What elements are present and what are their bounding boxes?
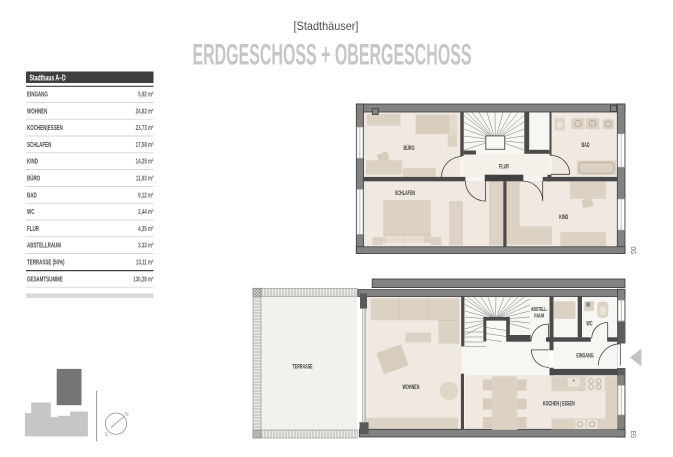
svg-text:BAD: BAD <box>581 142 589 149</box>
svg-text:17,58 m²: 17,58 m² <box>136 141 154 149</box>
svg-text:KOCHEN|ESSEN: KOCHEN|ESSEN <box>27 125 63 132</box>
svg-text:ABSTELLRAUM: ABSTELLRAUM <box>27 243 61 250</box>
svg-text:WC: WC <box>586 321 592 328</box>
svg-text:WC: WC <box>27 209 35 216</box>
svg-text:[Stadthäuser]: [Stadthäuser] <box>294 21 359 33</box>
svg-text:WOHNEN: WOHNEN <box>403 384 420 391</box>
svg-text:RAUM: RAUM <box>534 313 544 319</box>
svg-text:5,92 m²: 5,92 m² <box>138 91 153 99</box>
svg-text:S: S <box>105 432 109 438</box>
svg-text:FLUR: FLUR <box>499 163 509 170</box>
svg-text:TERRASSE (50%): TERRASSE (50%) <box>27 260 65 267</box>
svg-text:KOCHEN | ESSEN: KOCHEN | ESSEN <box>543 401 575 408</box>
svg-text:Stadthaus A–D: Stadthaus A–D <box>30 75 66 83</box>
svg-text:EINGANG: EINGANG <box>27 92 48 99</box>
svg-text:13,11 m²: 13,11 m² <box>136 259 154 267</box>
svg-text:4,35 m²: 4,35 m² <box>138 225 153 233</box>
svg-text:WOHNEN: WOHNEN <box>27 109 47 116</box>
svg-text:SCHLAFEN: SCHLAFEN <box>27 142 51 149</box>
svg-text:KIND: KIND <box>559 214 568 221</box>
svg-text:24,82 m²: 24,82 m² <box>136 107 154 115</box>
svg-text:3,33 m²: 3,33 m² <box>138 242 153 250</box>
svg-text:SCHLAFEN: SCHLAFEN <box>395 190 416 197</box>
svg-text:OG: OG <box>628 247 635 255</box>
svg-text:BAD: BAD <box>27 193 37 200</box>
svg-text:ERDGESCHOSS + OBERGESCHOSS: ERDGESCHOSS + OBERGESCHOSS <box>192 38 471 72</box>
svg-text:BÜRO: BÜRO <box>404 144 415 152</box>
svg-text:11,93 m²: 11,93 m² <box>136 175 154 183</box>
svg-text:KIND: KIND <box>27 159 38 166</box>
svg-text:23,73 m²: 23,73 m² <box>136 124 154 132</box>
svg-text:GESAMTSUMME: GESAMTSUMME <box>27 277 63 284</box>
svg-text:EG: EG <box>628 431 635 438</box>
svg-text:2,44 m²: 2,44 m² <box>138 208 153 216</box>
svg-text:130,28 m²: 130,28 m² <box>133 275 153 283</box>
svg-text:BÜRO: BÜRO <box>27 175 40 183</box>
svg-text:9,12 m²: 9,12 m² <box>138 191 153 199</box>
svg-text:N: N <box>125 412 129 418</box>
svg-text:ABSTELL-: ABSTELL- <box>531 306 548 312</box>
svg-text:TERRASSE: TERRASSE <box>292 364 313 371</box>
svg-text:EINGANG: EINGANG <box>576 353 593 360</box>
svg-text:FLUR: FLUR <box>27 226 39 233</box>
svg-text:14,25 m²: 14,25 m² <box>136 158 154 166</box>
